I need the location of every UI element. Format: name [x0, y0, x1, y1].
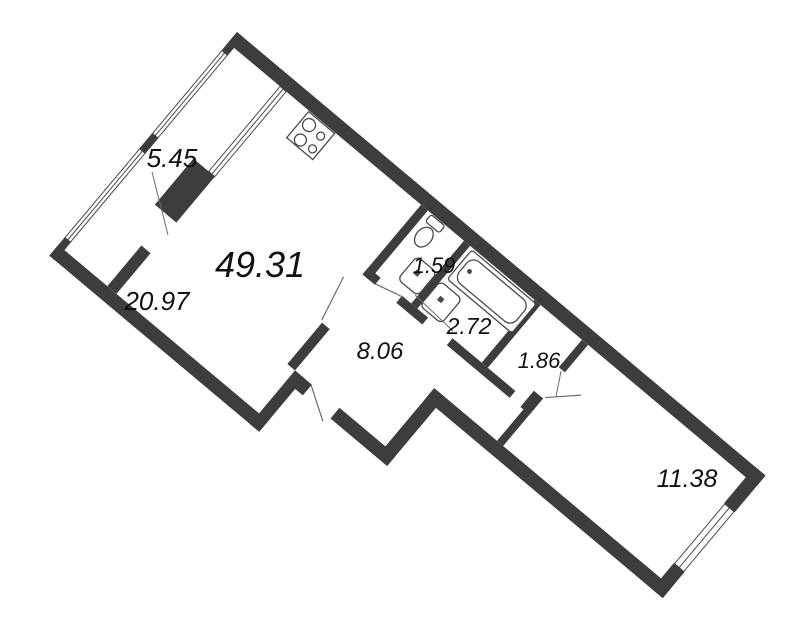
plan-rotated-group: [49, 32, 765, 634]
floor-plan-page: 5.45 20.97 49.31 1.59 2.72 8.06 1.86 11.…: [0, 0, 800, 634]
outer-wall-top: [228, 32, 766, 486]
room-label-entry-hall: 8.06: [357, 338, 404, 365]
walls: [49, 32, 765, 634]
balcony-window-glass-line-1: [155, 53, 224, 136]
bedroom-door-leaf-line: [545, 378, 581, 414]
room-label-living-kitchen: 20.97: [123, 286, 191, 316]
bedroom-wall-lower: [497, 393, 543, 446]
room-label-wc: 1.59: [413, 253, 456, 278]
living-door-leaf-line: [313, 277, 352, 320]
entrance-wall-right: [330, 408, 396, 466]
bedroom-wall-upper: [559, 340, 588, 373]
hallway-leader-line: [556, 371, 561, 397]
room-label-balcony: 5.45: [147, 143, 198, 173]
floor-plan-drawing: 5.45 20.97 49.31 1.59 2.72 8.06 1.86 11.…: [0, 0, 800, 634]
room-label-bathroom: 2.72: [446, 313, 492, 339]
outer-wall-bedroom-bottom: [425, 388, 671, 598]
room-label-bedroom: 11.38: [657, 465, 718, 493]
room-label-hallway: 1.86: [518, 348, 562, 373]
living-hall-wall: [287, 323, 329, 371]
balcony-window-glass-line-2: [68, 151, 143, 240]
total-area-label: 49.31: [215, 244, 305, 285]
balcony-divider-glass-line: [212, 89, 283, 174]
bedroom-window-glass-line: [679, 508, 729, 568]
